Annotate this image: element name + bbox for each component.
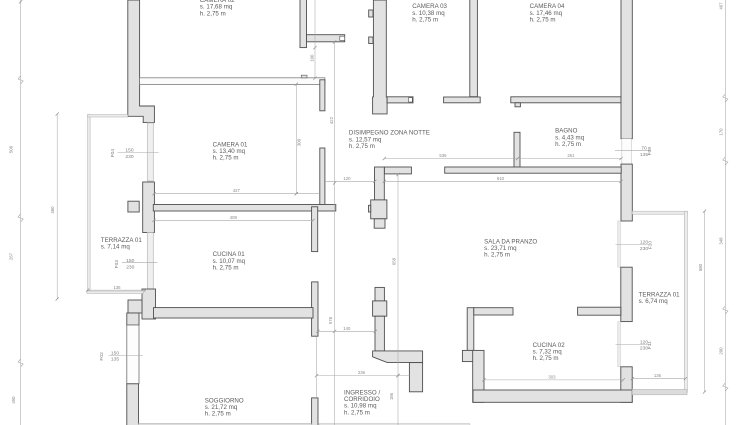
svg-text:261: 261: [567, 153, 575, 158]
svg-text:408: 408: [230, 215, 238, 220]
svg-text:200: 200: [719, 347, 724, 355]
svg-text:140: 140: [343, 326, 351, 331]
svg-text:100: 100: [309, 54, 314, 62]
svg-text:120: 120: [640, 240, 648, 246]
svg-text:F11: F11: [647, 341, 653, 349]
svg-text:s. 7,14 mq: s. 7,14 mq: [101, 244, 131, 251]
svg-text:658: 658: [392, 257, 397, 265]
svg-text:h. 2,75 m: h. 2,75 m: [530, 16, 556, 23]
svg-text:303: 303: [548, 374, 556, 379]
svg-text:h. 2,75 m: h. 2,75 m: [349, 143, 375, 150]
svg-text:460: 460: [50, 206, 55, 214]
svg-text:h. 2,75 m: h. 2,75 m: [412, 16, 438, 23]
svg-text:F10: F10: [648, 241, 654, 250]
svg-text:536: 536: [439, 153, 447, 158]
svg-text:422: 422: [329, 116, 334, 124]
svg-text:136: 136: [654, 373, 662, 378]
svg-text:s. 6,74 mq: s. 6,74 mq: [639, 298, 669, 305]
svg-text:150: 150: [111, 350, 119, 356]
svg-text:F03: F03: [114, 260, 120, 269]
svg-text:F02: F02: [99, 352, 105, 361]
svg-text:70: 70: [641, 146, 647, 152]
svg-text:h. 2,75 m: h. 2,75 m: [555, 141, 581, 148]
svg-text:h. 2,75 m: h. 2,75 m: [533, 355, 559, 362]
svg-text:h. 2,75 m: h. 2,75 m: [205, 411, 231, 418]
svg-text:135: 135: [111, 357, 119, 363]
svg-text:120: 120: [343, 176, 351, 181]
svg-text:135: 135: [113, 285, 121, 290]
svg-text:508: 508: [9, 145, 14, 153]
svg-text:186: 186: [389, 392, 394, 400]
svg-text:490: 490: [11, 396, 16, 404]
svg-text:308: 308: [297, 138, 302, 146]
svg-text:427: 427: [233, 188, 241, 193]
svg-text:h. 2,75 m: h. 2,75 m: [213, 264, 239, 271]
svg-text:F04: F04: [110, 149, 116, 158]
svg-text:230: 230: [125, 154, 133, 160]
svg-text:236: 236: [358, 370, 366, 375]
svg-text:348: 348: [719, 237, 724, 245]
svg-text:h. 2,75 m: h. 2,75 m: [344, 409, 370, 416]
svg-text:h. 2,75 m: h. 2,75 m: [200, 10, 226, 17]
svg-text:578: 578: [328, 316, 333, 324]
svg-text:230: 230: [126, 264, 134, 270]
svg-text:150: 150: [126, 258, 134, 264]
svg-text:680: 680: [698, 263, 703, 271]
svg-text:F09: F09: [647, 147, 653, 156]
svg-text:150: 150: [125, 148, 133, 154]
svg-text:610: 610: [497, 176, 505, 181]
svg-text:170: 170: [719, 128, 724, 136]
svg-text:267: 267: [9, 252, 14, 260]
svg-text:h. 2,75 m: h. 2,75 m: [213, 155, 239, 162]
svg-text:467: 467: [719, 2, 724, 10]
svg-text:h. 2,75 m: h. 2,75 m: [484, 252, 510, 259]
svg-text:230: 230: [640, 246, 648, 252]
